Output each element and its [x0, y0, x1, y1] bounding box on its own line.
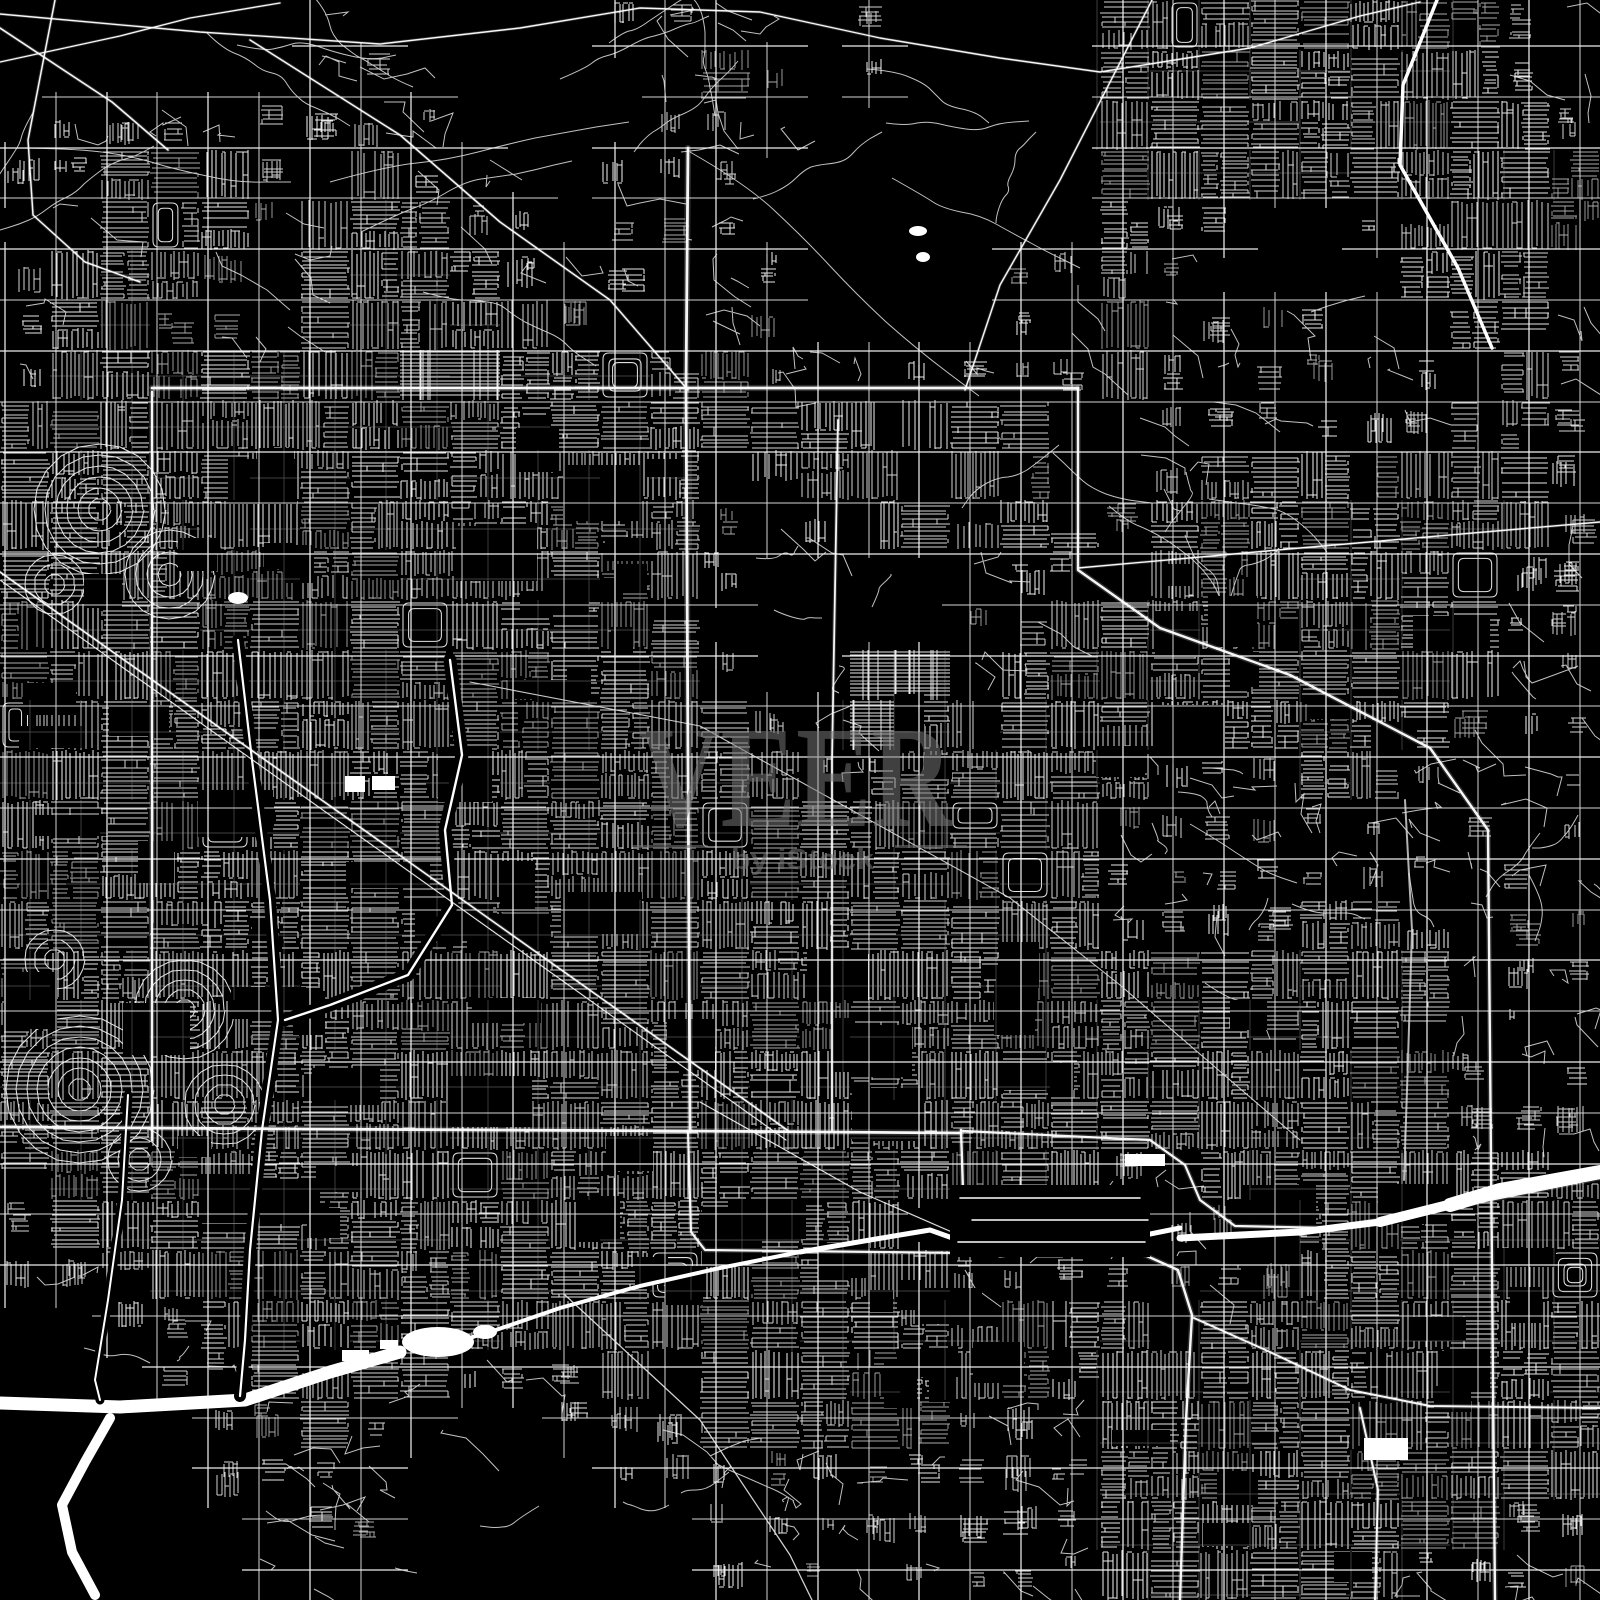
svg-text:VEER: VEER	[639, 698, 954, 858]
svg-text:by iStock: by iStock	[731, 844, 875, 876]
